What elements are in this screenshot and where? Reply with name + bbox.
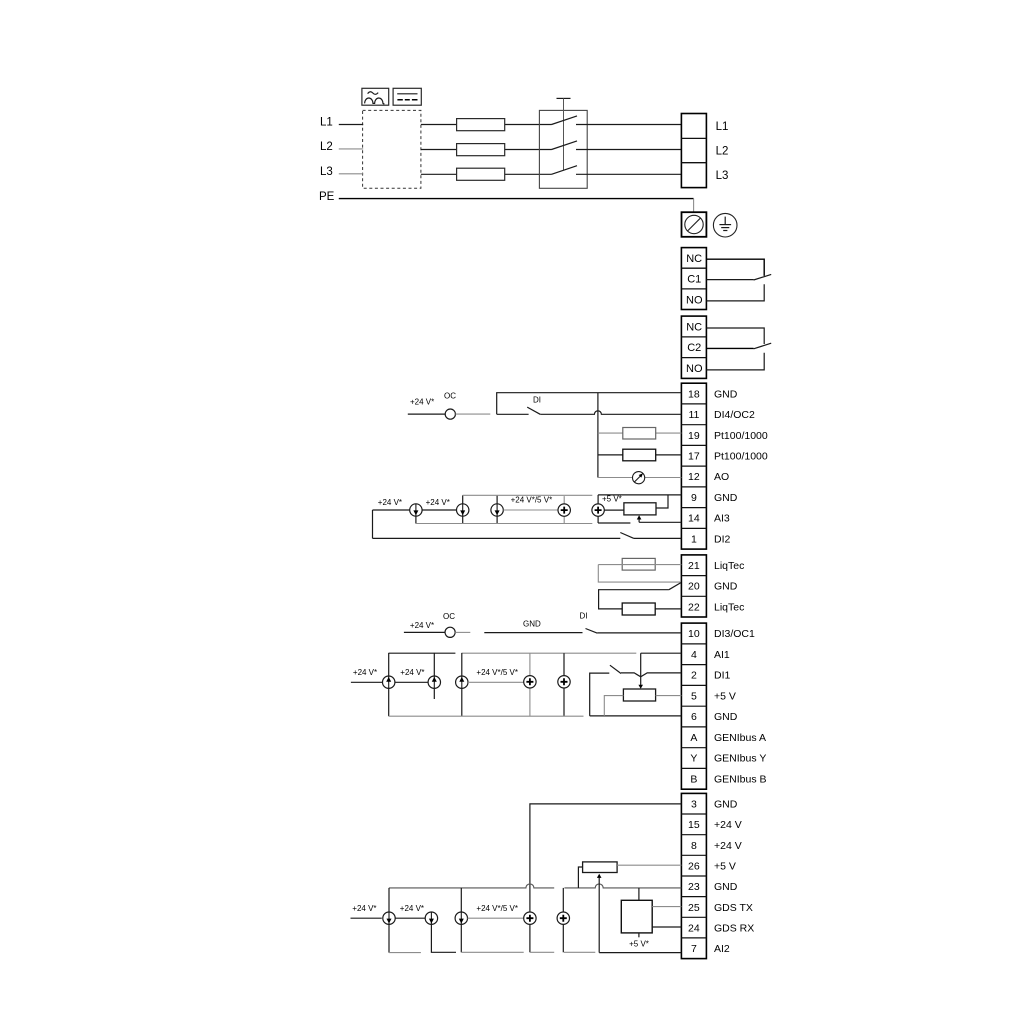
svg-text:Pt100/1000: Pt100/1000 [714,451,768,463]
svg-text:Y: Y [690,753,697,765]
svg-text:GENIbus A: GENIbus A [714,732,766,744]
svg-text:GDS RX: GDS RX [714,922,754,934]
svg-text:+24 V*: +24 V* [400,904,424,913]
svg-text:+5 V: +5 V [714,691,736,703]
svg-text:14: 14 [688,513,700,525]
svg-text:AI3: AI3 [714,513,730,525]
svg-text:DI: DI [533,396,541,405]
svg-text:L2: L2 [716,145,729,157]
svg-text:22: 22 [688,601,700,613]
svg-text:+24 V*: +24 V* [378,498,402,507]
svg-text:Pt100/1000: Pt100/1000 [714,430,768,442]
svg-text:24: 24 [688,922,700,934]
svg-text:12: 12 [688,471,700,483]
svg-text:L2: L2 [320,141,333,153]
svg-text:5: 5 [691,691,697,703]
svg-text:25: 25 [688,902,700,914]
svg-text:+24 V*: +24 V* [400,668,424,677]
svg-text:GND: GND [714,388,738,400]
svg-text:+5 V*: +5 V* [602,494,622,503]
svg-text:AO: AO [714,471,729,483]
svg-text:17: 17 [688,451,700,463]
svg-text:LiqTec: LiqTec [714,560,744,572]
svg-text:L3: L3 [716,170,729,182]
svg-text:GND: GND [714,492,738,504]
svg-text:DI3/OC1: DI3/OC1 [714,628,755,640]
svg-text:C1: C1 [687,274,701,286]
svg-text:26: 26 [688,860,700,872]
svg-text:DI2: DI2 [714,533,731,545]
svg-text:DI4/OC2: DI4/OC2 [714,409,755,421]
svg-text:15: 15 [688,819,700,831]
svg-text:LiqTec: LiqTec [714,601,744,613]
svg-text:7: 7 [691,943,697,955]
svg-text:AI1: AI1 [714,649,730,661]
svg-text:PE: PE [319,191,335,203]
svg-text:21: 21 [688,560,700,572]
svg-text:NO: NO [686,294,703,306]
svg-text:+24 V*: +24 V* [426,498,450,507]
svg-text:GENIbus B: GENIbus B [714,774,767,786]
svg-text:OC: OC [444,392,456,401]
svg-text:18: 18 [688,388,700,400]
svg-text:C2: C2 [687,342,701,354]
svg-text:+24 V*/5 V*: +24 V*/5 V* [476,668,518,677]
svg-text:B: B [690,774,697,786]
svg-text:GENIbus Y: GENIbus Y [714,753,766,765]
svg-text:A: A [690,732,697,744]
svg-text:+24 V*/5 V*: +24 V*/5 V* [476,904,518,913]
svg-text:10: 10 [688,628,700,640]
svg-text:9: 9 [691,492,697,504]
svg-text:GND: GND [714,798,738,810]
svg-text:NO: NO [686,363,703,375]
svg-text:8: 8 [691,840,697,852]
svg-text:2: 2 [691,670,697,682]
svg-text:3: 3 [691,798,697,810]
svg-text:+24 V*: +24 V* [353,668,377,677]
svg-text:+5 V*: +5 V* [629,940,649,949]
svg-text:19: 19 [688,430,700,442]
svg-text:+24 V*: +24 V* [410,398,434,407]
svg-text:+24 V*: +24 V* [352,904,376,913]
svg-text:DI1: DI1 [714,670,731,682]
svg-text:GND: GND [714,581,738,593]
svg-text:L3: L3 [320,166,333,178]
svg-text:NC: NC [686,322,702,334]
svg-text:11: 11 [688,409,699,421]
svg-text:GND: GND [714,881,738,893]
svg-text:6: 6 [691,711,697,723]
svg-text:+24 V: +24 V [714,819,742,831]
svg-text:NC: NC [686,253,702,265]
svg-text:OC: OC [443,612,455,621]
svg-text:+5 V: +5 V [714,860,736,872]
svg-text:GND: GND [714,711,738,723]
svg-text:23: 23 [688,881,700,893]
svg-text:20: 20 [688,581,700,593]
svg-text:1: 1 [691,533,697,545]
svg-text:DI: DI [580,611,588,620]
svg-text:GDS TX: GDS TX [714,902,753,914]
svg-text:L1: L1 [320,117,333,129]
svg-text:+24 V*/5 V*: +24 V*/5 V* [511,496,553,505]
svg-text:+24 V*: +24 V* [410,621,434,630]
svg-text:4: 4 [691,649,697,661]
svg-text:AI2: AI2 [714,943,730,955]
svg-text:GND: GND [523,619,541,628]
svg-text:L1: L1 [716,121,729,133]
svg-text:+24 V: +24 V [714,840,742,852]
